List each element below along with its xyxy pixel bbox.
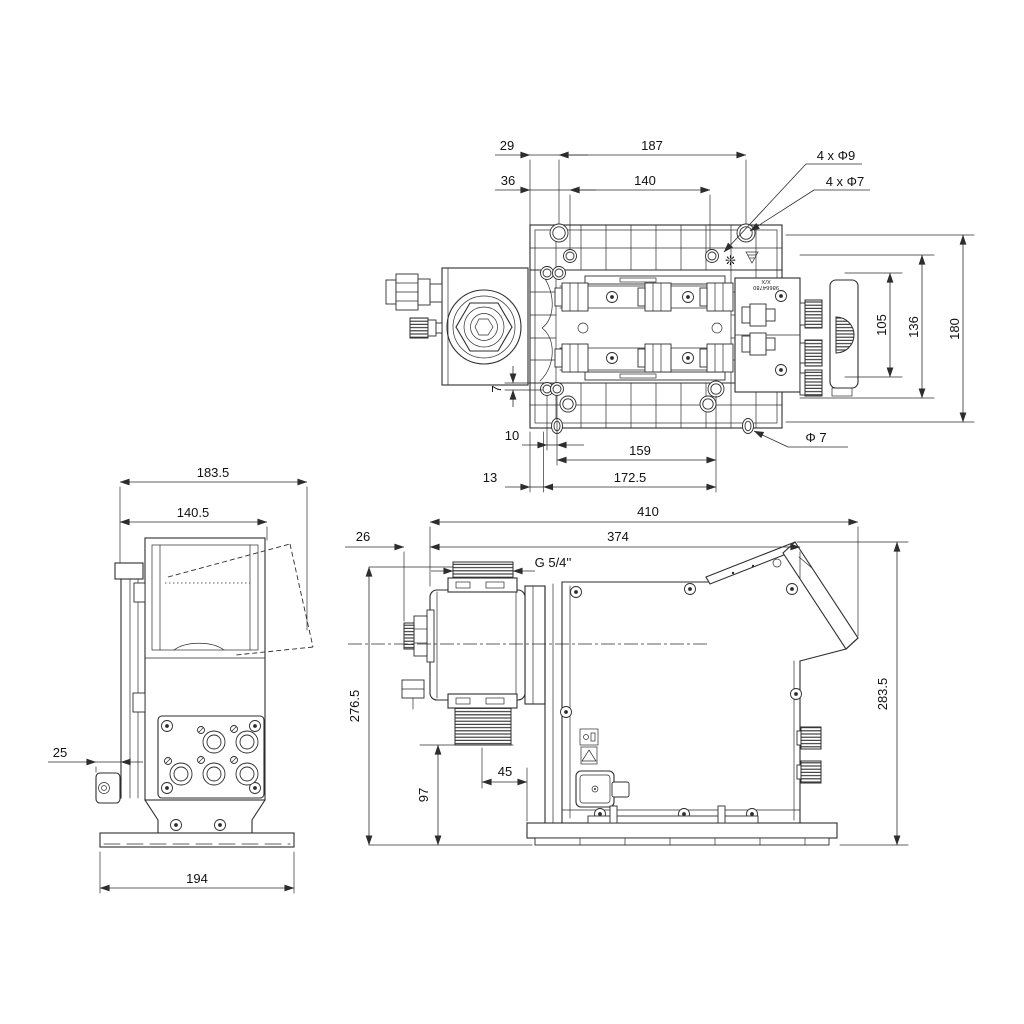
callout-dia7-label: Φ 7 <box>805 430 826 445</box>
warning-labels <box>580 729 598 764</box>
front-view: 410 374 26 G 5/4'' 276.5 97 45 283.5 <box>345 504 908 845</box>
snowflake-icon: ❊ <box>725 253 736 268</box>
dim-194-label: 194 <box>186 871 208 886</box>
dim-thread-label: G 5/4'' <box>535 555 572 570</box>
callout-4xd9-label: 4 x Φ9 <box>817 148 856 163</box>
dim-97: 97 <box>416 745 513 845</box>
dim-374-label: 374 <box>607 529 629 544</box>
connector-panel <box>158 716 264 798</box>
dim-172-5-label: 172.5 <box>614 470 647 485</box>
dim-45: 45 <box>482 748 527 821</box>
dim-140-5-label: 140.5 <box>177 505 210 520</box>
dim-25-label: 25 <box>53 745 67 760</box>
control-cube-top: X/X 98664780 <box>735 278 800 392</box>
dim-10-label: 10 <box>505 428 519 443</box>
dim-140-5: 140.5 <box>120 505 267 540</box>
drawing-page: ❊ X/X 98664780 <box>0 0 1024 1024</box>
dim-159-label: 159 <box>629 443 651 458</box>
dosing-head-front <box>402 562 525 745</box>
power-socket <box>576 771 629 807</box>
dim-36: 36 <box>495 173 596 190</box>
dim-136-label: 136 <box>906 316 921 338</box>
top-view: ❊ X/X 98664780 <box>386 138 974 492</box>
dim-36-label: 36 <box>501 173 515 188</box>
dim-25: 25 <box>48 745 143 772</box>
side-body <box>96 538 313 847</box>
dim-140-label: 140 <box>634 173 656 188</box>
dim-45-label: 45 <box>498 764 512 779</box>
dosing-head-top <box>386 268 528 385</box>
dim-410-label: 410 <box>637 504 659 519</box>
cable-glands-top-right <box>800 300 822 396</box>
dim-194: 194 <box>100 852 294 893</box>
dim-7-label: 7 <box>489 385 504 392</box>
control-panel-front <box>706 542 858 661</box>
cable-glands-rear <box>797 727 821 783</box>
nameplate-line1: X/X <box>761 278 771 284</box>
vent-valve <box>404 610 434 662</box>
discharge-thread <box>453 562 513 578</box>
callout-dia7: Φ 7 <box>754 430 848 447</box>
dim-172-5: 172.5 <box>544 470 717 487</box>
engineering-drawing: ❊ X/X 98664780 <box>0 0 1024 1024</box>
cable-gland-top <box>386 274 442 310</box>
callout-4xd7: 4 x Φ7 <box>750 174 870 231</box>
wall-bracket <box>96 773 120 803</box>
knurled-knob-top <box>410 318 442 338</box>
dim-187-label: 187 <box>641 138 663 153</box>
dim-276-5-label: 276.5 <box>347 690 362 723</box>
dim-26: 26 <box>345 529 404 621</box>
dim-29-label: 29 <box>500 138 514 153</box>
dim-180-label: 180 <box>947 318 962 340</box>
dim-105-label: 105 <box>874 314 889 336</box>
panel-led-icon <box>773 559 781 567</box>
dim-183-5-label: 183.5 <box>197 465 230 480</box>
suction-thread <box>455 708 511 745</box>
dim-26-label: 26 <box>356 529 370 544</box>
nameplate-line2: 98664780 <box>753 284 779 290</box>
dim-97-label: 97 <box>416 788 431 802</box>
dim-283-5-label: 283.5 <box>875 678 890 711</box>
base-plate-side <box>100 833 294 847</box>
callout-4xd7-label: 4 x Φ7 <box>826 174 865 189</box>
left-side-view: 183.5 140.5 25 194 <box>48 465 313 893</box>
click-wheel-top <box>830 280 858 396</box>
dim-13-label: 13 <box>483 470 497 485</box>
